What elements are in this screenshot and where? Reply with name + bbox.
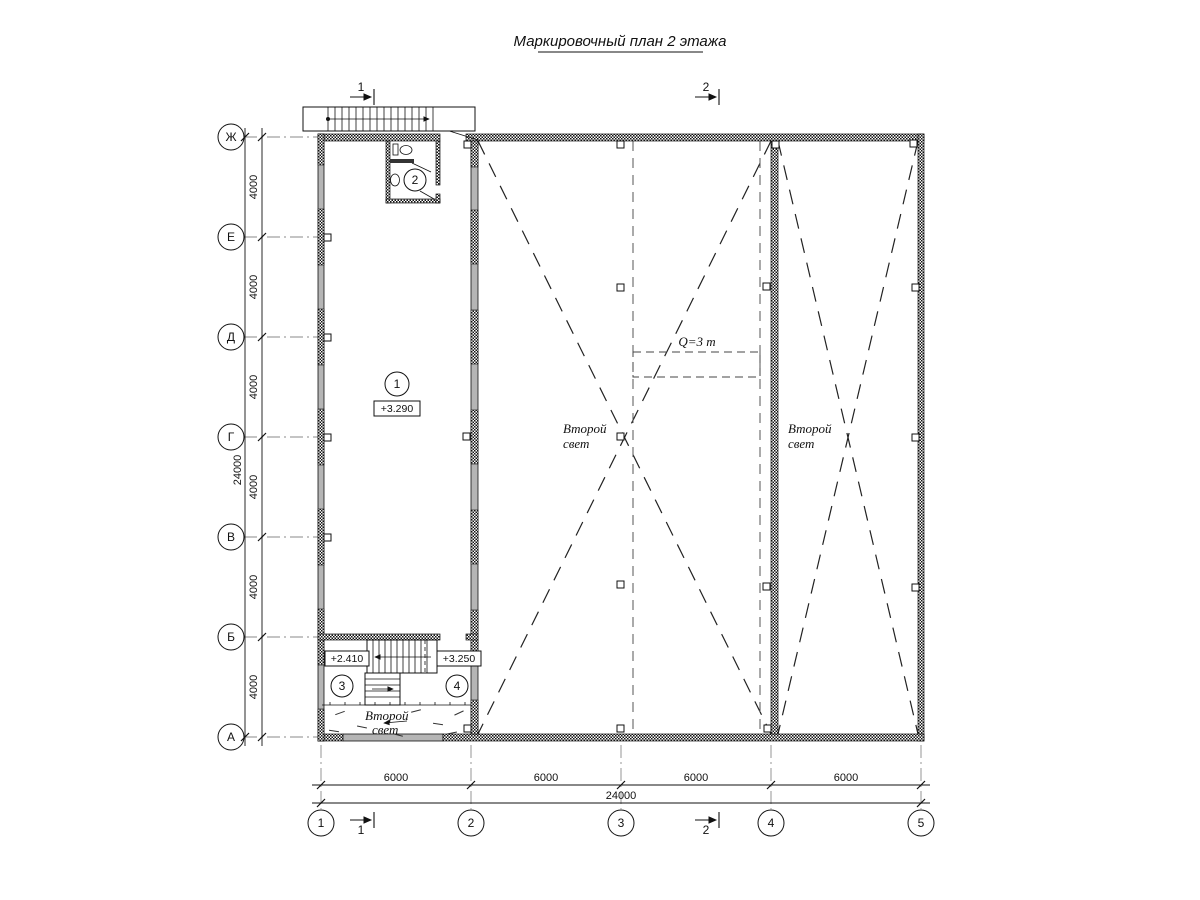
second-light-labels: Второй свет Второй свет Второй свет: [365, 421, 832, 737]
dimension-ticks: [241, 133, 925, 807]
drawing-title: Маркировочный план 2 этажа: [514, 33, 727, 52]
svg-text:Д: Д: [227, 330, 235, 344]
stairwell-wall-left: [318, 634, 440, 640]
drawing-sheet: Маркировочный план 2 этажа Q=3 т: [0, 0, 1200, 900]
room4-elevation: +3.250: [443, 653, 476, 665]
dim-4000-1: 4000: [248, 175, 260, 199]
toilet-icon: [400, 146, 412, 155]
second-light-right-line2: свет: [788, 436, 814, 451]
sink-icon: [391, 174, 400, 186]
bottom-wall-right: [443, 734, 924, 741]
svg-text:4: 4: [768, 816, 775, 830]
axis-lines: [244, 137, 921, 809]
wc-door-leaf-2: [420, 191, 434, 199]
section1-top-label: 1: [358, 80, 365, 94]
room-markers: 1 +3.290 2 3 +2.410 4 +3.250: [325, 169, 481, 697]
toilet-tank: [393, 144, 398, 155]
dim-4000-5: 4000: [248, 575, 260, 599]
svg-text:Г: Г: [228, 430, 235, 444]
title-text: Маркировочный план 2 этажа: [514, 33, 727, 50]
dim-4000-6: 4000: [248, 675, 260, 699]
crane-capacity-label: Q=3 т: [678, 334, 715, 349]
top-wall-right: [466, 134, 924, 141]
room3-number: 3: [339, 679, 346, 693]
dim-6000-4: 6000: [834, 772, 858, 784]
dim-24000-left: 24000: [232, 455, 244, 486]
floor-plan-drawing: Маркировочный план 2 этажа Q=3 т: [0, 0, 1200, 900]
wc-partition: [390, 159, 414, 163]
svg-text:Е: Е: [227, 230, 235, 244]
room2-number: 2: [412, 173, 419, 187]
second-light-stair-line2: свет: [372, 722, 398, 737]
dim-6000-3: 6000: [684, 772, 708, 784]
dim-6000-1: 6000: [384, 772, 408, 784]
wc-bottom-wall: [386, 199, 440, 203]
dim-4000-4: 4000: [248, 475, 260, 499]
svg-text:В: В: [227, 530, 235, 544]
wc-left-wall: [386, 141, 390, 203]
inner-wall-axis4: [771, 141, 778, 734]
section2-bottom-label: 2: [703, 823, 710, 837]
room4-number: 4: [454, 679, 461, 693]
crane-bridge: [633, 352, 760, 377]
dim-6000-2: 6000: [534, 772, 558, 784]
svg-text:Б: Б: [227, 630, 235, 644]
wc-right-wall-stub: [436, 194, 440, 203]
second-light-right-line1: Второй: [788, 421, 832, 436]
wc-right-wall: [436, 141, 440, 185]
svg-text:Ж: Ж: [225, 130, 236, 144]
stairwell-wall-right: [466, 634, 478, 640]
svg-text:5: 5: [918, 816, 925, 830]
dim-24000-bottom: 24000: [606, 790, 637, 802]
svg-text:1: 1: [318, 816, 325, 830]
room1-elevation: +3.290: [381, 403, 414, 415]
second-light-mid-line2: свет: [563, 436, 589, 451]
exterior-stair: [303, 107, 475, 131]
section-marks: 1 2 1 2: [350, 80, 719, 837]
crane-rails: Q=3 т: [633, 141, 760, 734]
section2-top-label: 2: [703, 80, 710, 94]
top-wall-left: [318, 134, 440, 141]
second-light-mid-line1: Второй: [563, 421, 607, 436]
section1-bottom-label: 1: [358, 823, 365, 837]
svg-text:2: 2: [468, 816, 475, 830]
dim-4000-3: 4000: [248, 375, 260, 399]
svg-text:3: 3: [618, 816, 625, 830]
svg-text:А: А: [227, 730, 235, 744]
room3-elevation: +2.410: [331, 653, 364, 665]
room1-number: 1: [394, 377, 401, 391]
dim-4000-2: 4000: [248, 275, 260, 299]
second-light-stair-line1: Второй: [365, 708, 409, 723]
second-light-openings: [478, 141, 918, 734]
